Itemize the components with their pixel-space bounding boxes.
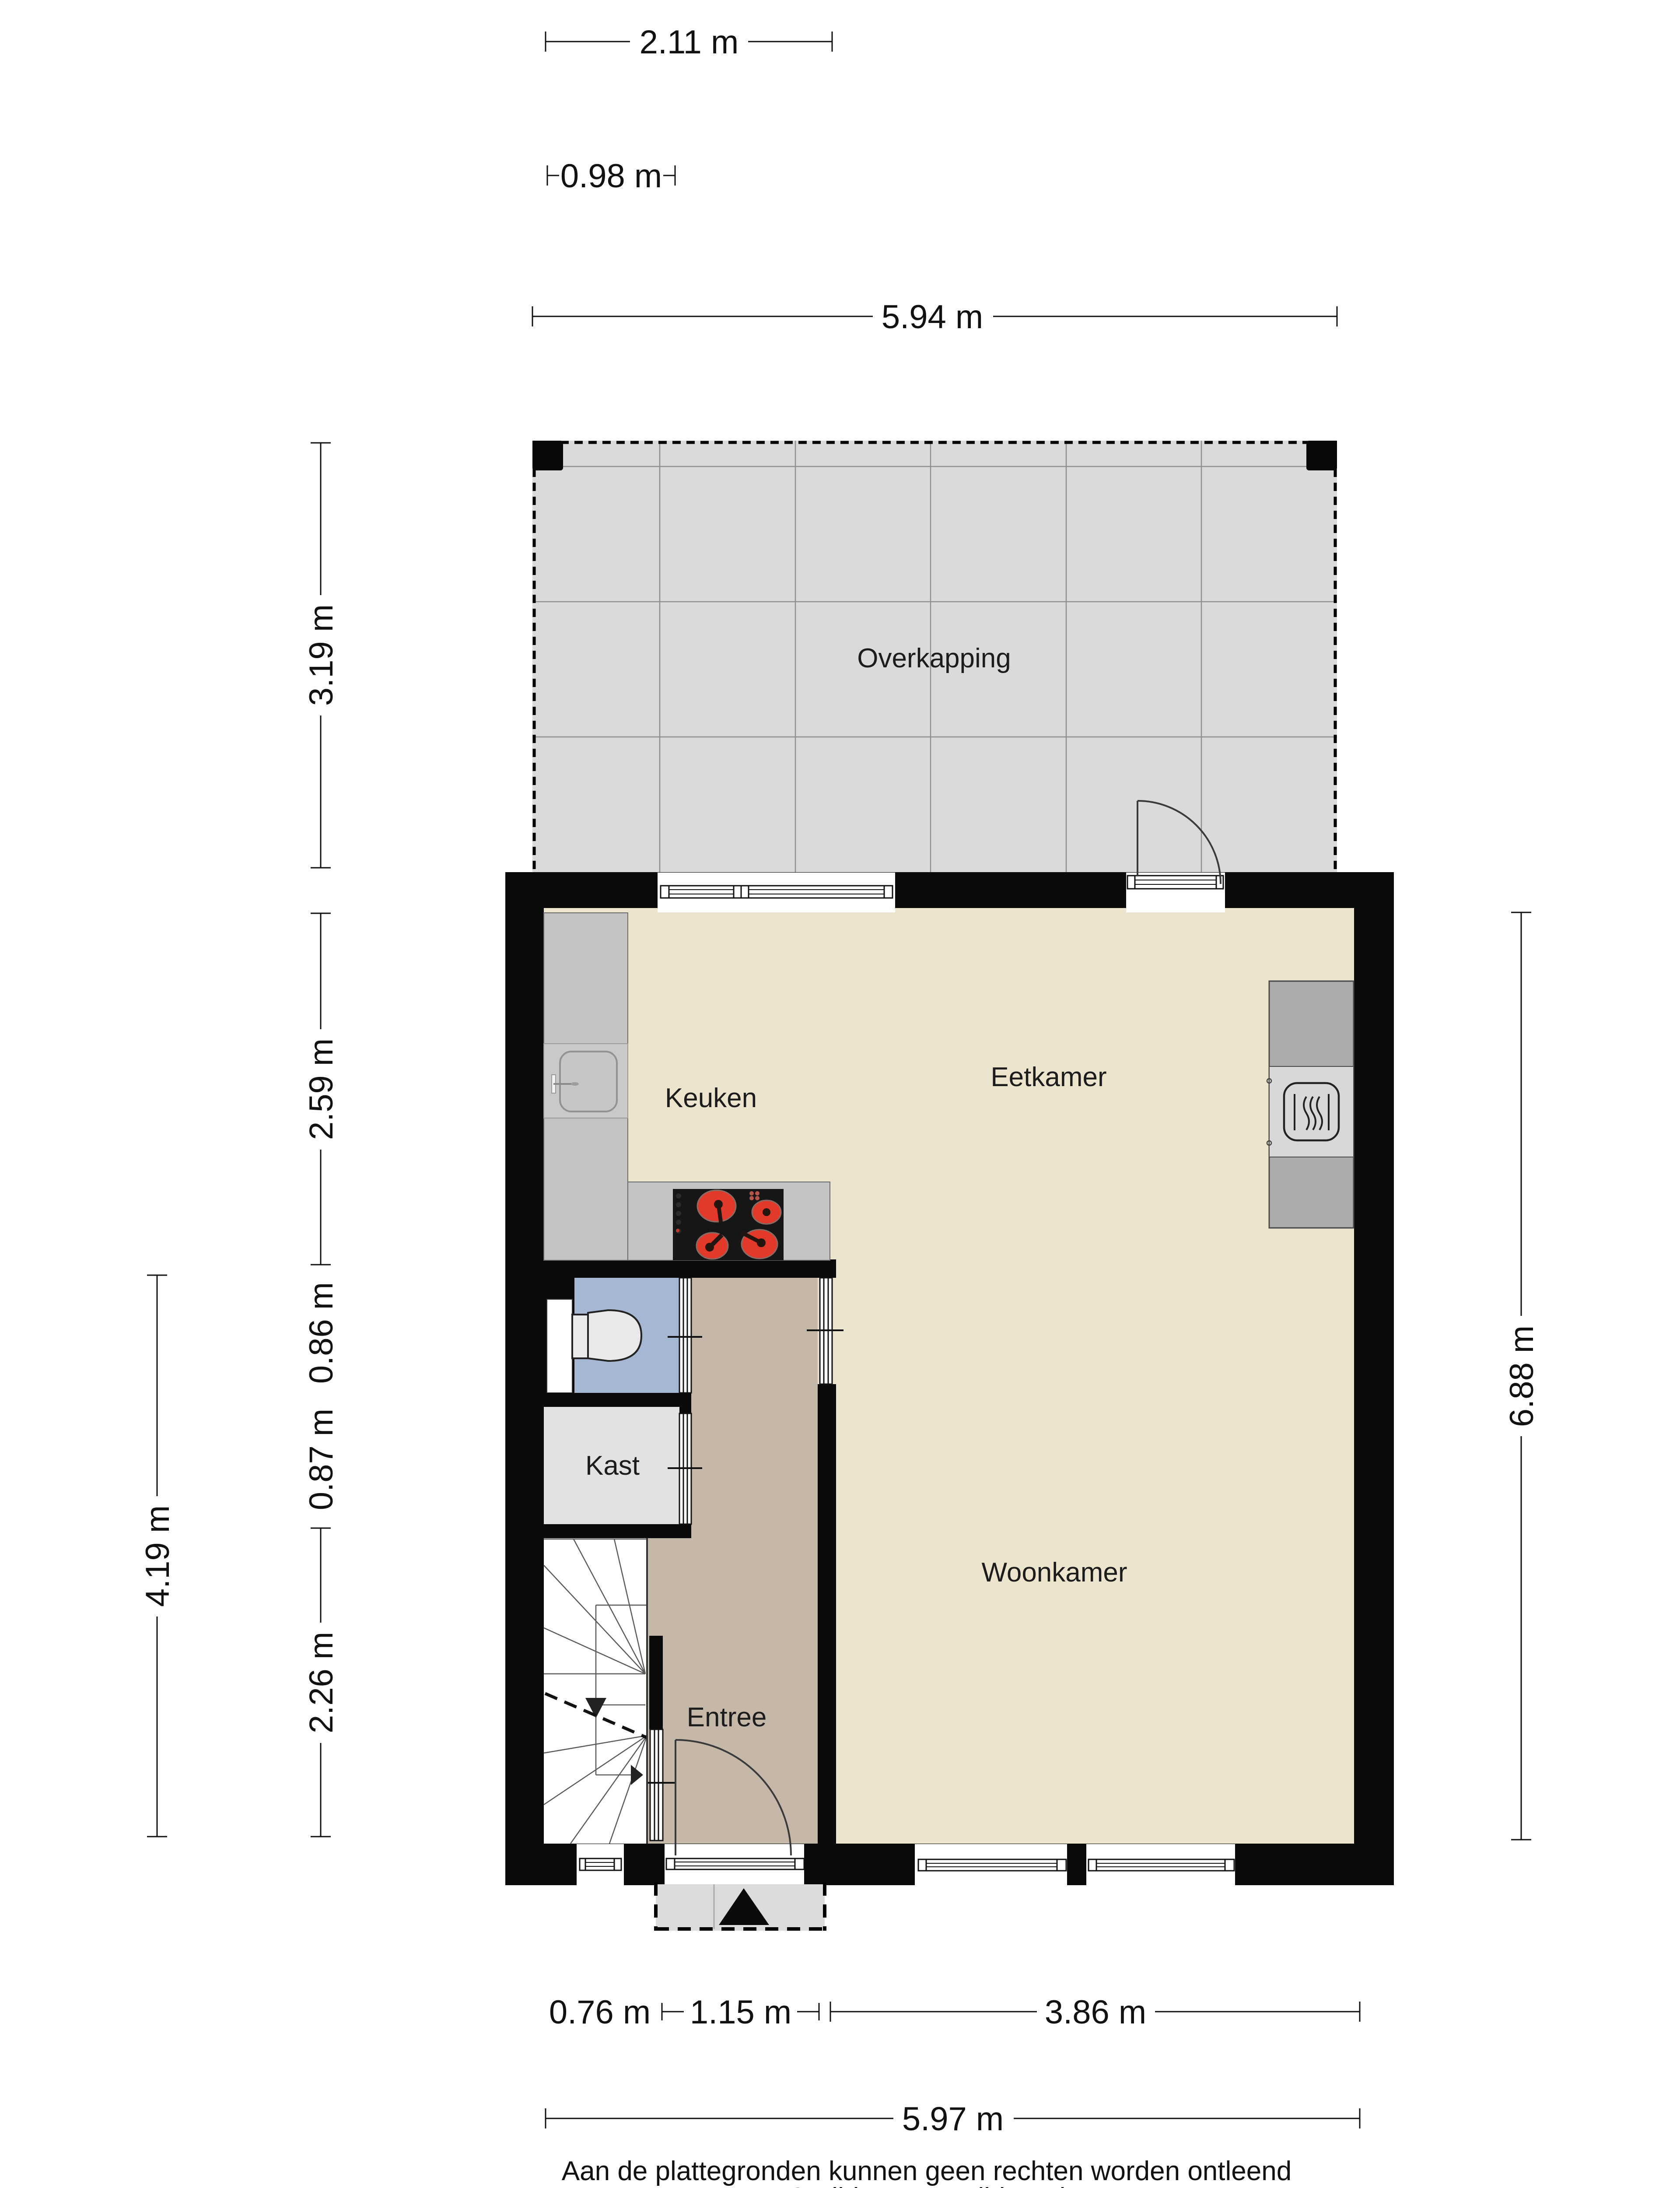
svg-text:3.86 m: 3.86 m [1045, 1994, 1146, 2031]
svg-text:0.86 m: 0.86 m [303, 1282, 340, 1384]
svg-text:Eetkamer: Eetkamer [990, 1062, 1106, 1092]
svg-text:2.11 m: 2.11 m [640, 24, 739, 61]
svg-text:4.19 m: 4.19 m [139, 1505, 176, 1607]
svg-text:2.26 m: 2.26 m [303, 1632, 340, 1733]
svg-text:Overkapping: Overkapping [857, 643, 1011, 673]
svg-text:1.15 m: 1.15 m [690, 1994, 791, 2031]
svg-text:Aan de plattegronden kunnen ge: Aan de plattegronden kunnen geen rechten… [562, 2156, 1291, 2186]
svg-text:5.97 m: 5.97 m [902, 2100, 1004, 2138]
svg-text:5.94 m: 5.94 m [882, 298, 983, 336]
svg-text:0.87 m: 0.87 m [303, 1409, 340, 1510]
svg-text:6.88 m: 6.88 m [1503, 1325, 1540, 1427]
svg-text:© Zibber www.zibber.nl: © Zibber www.zibber.nl [788, 2183, 1066, 2188]
svg-text:Keuken: Keuken [665, 1083, 757, 1113]
svg-text:2.59 m: 2.59 m [303, 1038, 340, 1140]
svg-text:Kast: Kast [585, 1451, 640, 1481]
svg-text:Entree: Entree [687, 1702, 767, 1732]
svg-text:0.76 m: 0.76 m [549, 1994, 651, 2031]
svg-text:0.98 m: 0.98 m [560, 158, 662, 195]
svg-text:3.19 m: 3.19 m [303, 604, 340, 706]
svg-text:Woonkamer: Woonkamer [981, 1557, 1127, 1588]
